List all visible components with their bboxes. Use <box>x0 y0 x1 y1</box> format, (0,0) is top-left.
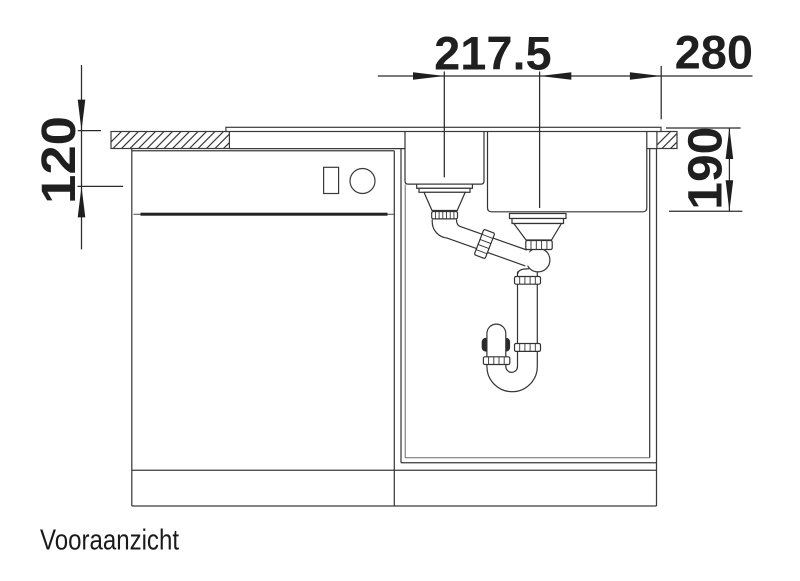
svg-text:Vooraanzicht: Vooraanzicht <box>40 525 179 557</box>
svg-text:120: 120 <box>33 116 86 204</box>
svg-text:190: 190 <box>680 127 733 210</box>
svg-text:217.5: 217.5 <box>434 27 552 80</box>
svg-text:280: 280 <box>675 26 753 79</box>
